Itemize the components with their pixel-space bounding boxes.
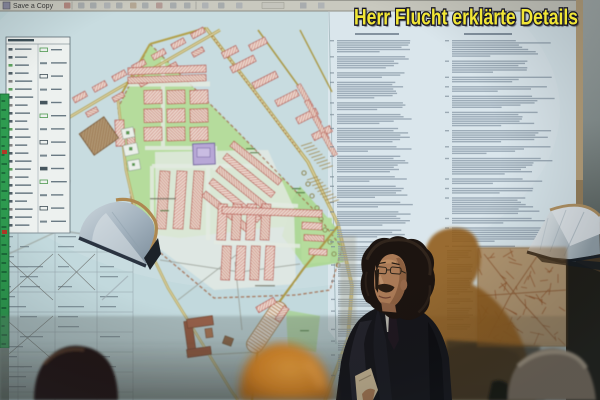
- svg-text:Herr Flucht erklärte Details: Herr Flucht erklärte Details: [354, 5, 578, 30]
